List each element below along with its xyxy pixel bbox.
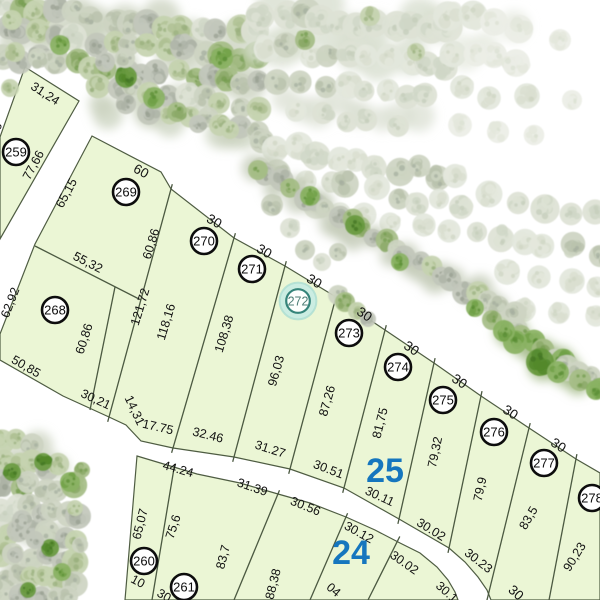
svg-text:270: 270	[193, 234, 215, 249]
svg-text:272: 272	[288, 295, 309, 309]
svg-text:259: 259	[5, 145, 27, 160]
svg-text:260: 260	[133, 554, 155, 569]
svg-text:278: 278	[581, 491, 600, 506]
svg-text:25: 25	[366, 452, 404, 490]
svg-text:276: 276	[483, 425, 505, 440]
svg-text:275: 275	[432, 393, 454, 408]
svg-text:24: 24	[332, 534, 370, 572]
svg-text:273: 273	[338, 326, 360, 341]
svg-text:261: 261	[173, 580, 195, 595]
svg-text:274: 274	[387, 360, 409, 375]
svg-text:271: 271	[241, 262, 263, 277]
svg-text:269: 269	[115, 185, 137, 200]
svg-text:268: 268	[44, 303, 66, 318]
svg-text:277: 277	[533, 456, 555, 471]
